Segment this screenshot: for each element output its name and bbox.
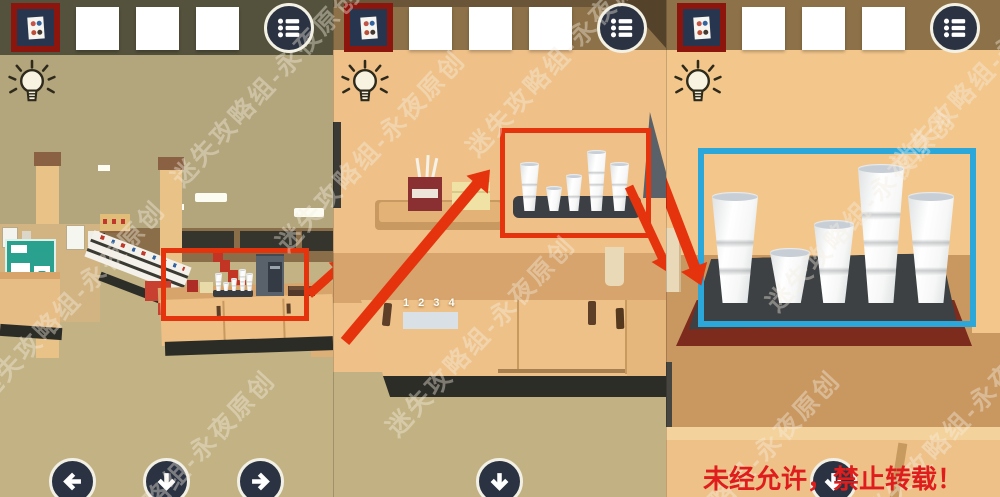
hint-button[interactable] <box>8 58 56 116</box>
counter-edge <box>666 427 1000 440</box>
dark-button-dot <box>369 29 374 34</box>
sign-print <box>103 219 127 224</box>
orange-button-dot <box>363 30 368 35</box>
menu-button[interactable] <box>930 3 980 53</box>
hint-button[interactable] <box>674 58 722 116</box>
door-handle[interactable] <box>588 301 596 325</box>
door-seam <box>517 300 519 371</box>
selected-item-background <box>683 9 720 46</box>
panel-counter-closeup: 1 2 3 4 <box>333 0 666 497</box>
inventory-slot-empty[interactable] <box>409 7 452 50</box>
navigation-row <box>0 458 333 497</box>
dark-button-dot <box>702 29 707 34</box>
inventory-slot-empty[interactable] <box>469 7 512 50</box>
right-arrow-icon <box>247 468 274 495</box>
menu-list-icon <box>605 11 639 45</box>
pillar-cap <box>34 152 61 166</box>
hint-button[interactable] <box>341 58 389 116</box>
inventory-bar <box>0 0 333 55</box>
nav-down-button[interactable] <box>476 458 523 497</box>
blue-button-dot <box>702 20 707 25</box>
ceiling-light <box>294 208 324 217</box>
pillar-cap <box>158 157 184 170</box>
left-counter-front <box>0 279 60 329</box>
door-rail <box>498 369 625 373</box>
wall-poster <box>66 225 85 250</box>
light-bulb-icon <box>674 58 722 112</box>
left-arrow-icon <box>59 468 86 495</box>
inventory-slot-selected[interactable] <box>344 3 393 52</box>
ceiling-light <box>98 165 110 171</box>
panel-divider <box>333 0 334 497</box>
cabinet-keypad-display[interactable] <box>403 312 458 329</box>
menu-button[interactable] <box>264 3 314 53</box>
red-button-dot <box>363 21 368 26</box>
cabinet-base <box>383 376 666 397</box>
stirrer-stick <box>425 155 429 179</box>
nav-left-button[interactable] <box>49 458 96 497</box>
nav-down-button[interactable] <box>143 458 190 497</box>
menu-list-icon <box>272 11 306 45</box>
highlight-rectangle-red <box>161 248 309 321</box>
right-door[interactable] <box>627 300 666 376</box>
highlight-rectangle-red <box>500 128 651 238</box>
orange-button-dot <box>30 30 35 35</box>
inventory-slot-empty[interactable] <box>742 7 785 50</box>
inventory-bar <box>333 0 666 55</box>
panel-store-overview <box>0 0 333 497</box>
shelf-edge <box>333 122 341 208</box>
selected-item-background <box>350 9 387 46</box>
inventory-bar <box>666 0 1000 55</box>
down-arrow-icon <box>486 468 513 495</box>
hanging-sign <box>100 214 130 233</box>
inventory-slot-empty[interactable] <box>802 7 845 50</box>
four-color-buttons-item-icon <box>360 16 377 39</box>
down-arrow-icon <box>153 468 180 495</box>
light-bulb-icon <box>8 58 56 112</box>
door-handle[interactable] <box>616 308 625 329</box>
paper-cup[interactable] <box>605 247 624 286</box>
orange-button-dot <box>696 30 701 35</box>
inventory-slot-selected[interactable] <box>677 3 726 52</box>
menu-button[interactable] <box>597 3 647 53</box>
light-bulb-icon <box>341 58 389 112</box>
door-handle[interactable] <box>382 303 392 327</box>
ceiling-light <box>195 193 227 202</box>
four-color-buttons-item-icon <box>27 16 44 39</box>
stirrer-box[interactable] <box>408 177 442 211</box>
dark-button-dot <box>36 29 41 34</box>
panel-divider <box>666 0 667 497</box>
four-color-buttons-item-icon <box>693 16 710 39</box>
selected-item-background <box>17 9 54 46</box>
navigation-row <box>333 458 666 497</box>
cabinet-keypad-digits: 1 2 3 4 <box>403 297 458 309</box>
nav-right-button[interactable] <box>237 458 284 497</box>
red-button-dot <box>696 21 701 26</box>
inventory-slot-empty[interactable] <box>862 7 905 50</box>
menu-list-icon <box>938 11 972 45</box>
copyright-notice: 未经允许，禁止转载！ <box>666 459 1000 496</box>
walkthrough-screenshot: 1 2 3 4 <box>0 0 1000 497</box>
red-button-dot <box>30 21 35 26</box>
inventory-slot-empty[interactable] <box>76 7 119 50</box>
inventory-slot-empty[interactable] <box>196 7 239 50</box>
notice-board-tab <box>11 245 27 253</box>
inventory-slot-selected[interactable] <box>11 3 60 52</box>
wall-patch <box>972 255 1000 333</box>
blue-button-dot <box>369 20 374 25</box>
blue-button-dot <box>36 20 41 25</box>
inventory-slot-empty[interactable] <box>136 7 179 50</box>
highlight-rectangle-blue <box>698 148 976 327</box>
inventory-slot-empty[interactable] <box>529 7 572 50</box>
panel-cups-closeup: 未经允许，禁止转载！ <box>666 0 1000 497</box>
stirrer-box-label <box>412 189 438 198</box>
